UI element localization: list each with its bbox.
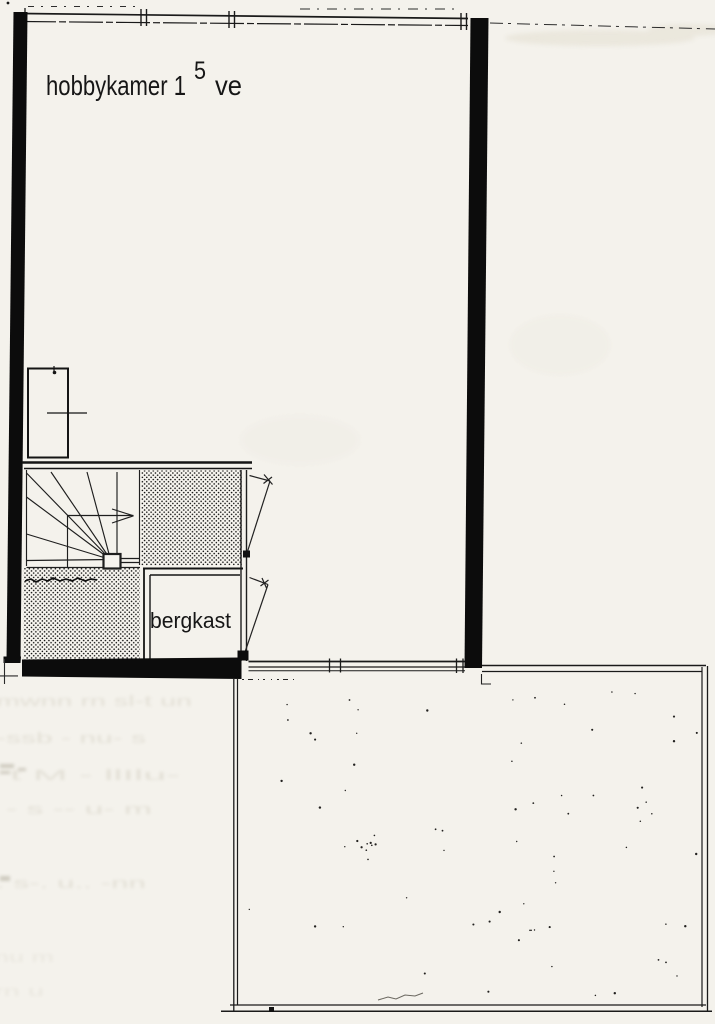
- svg-text:mwnn rn sl-t un: mwnn rn sl-t un: [0, 693, 192, 710]
- svg-text:ve: ve: [215, 70, 242, 101]
- svg-text:bergkast: bergkast: [150, 608, 231, 633]
- svg-text:rn u: rn u: [0, 983, 44, 1000]
- svg-text:. s-. u.. -nn: . s-. u.. -nn: [0, 875, 146, 892]
- svg-text:nu m: nu m: [0, 949, 54, 966]
- svg-text:5: 5: [194, 57, 206, 85]
- svg-text:- s -- u- m: - s -- u- m: [6, 801, 152, 818]
- svg-text:t M - llIlu-: t M - llIlu-: [10, 767, 180, 784]
- svg-text:-ssb - nu- s: -ssb - nu- s: [0, 730, 146, 747]
- svg-text:hobbykamer 1: hobbykamer 1: [46, 70, 186, 101]
